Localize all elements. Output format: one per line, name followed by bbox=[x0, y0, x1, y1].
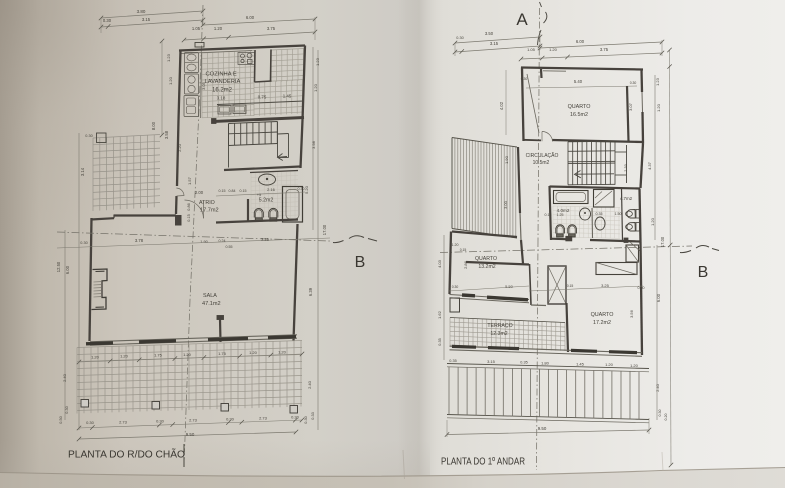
svg-text:PLANTA DO R/DO CHÃO: PLANTA DO R/DO CHÃO bbox=[68, 448, 185, 461]
svg-text:COZINHA E: COZINHA E bbox=[206, 72, 237, 78]
svg-text:3.07: 3.07 bbox=[628, 102, 633, 111]
svg-text:0.35: 0.35 bbox=[449, 359, 456, 363]
svg-text:6.00: 6.00 bbox=[246, 15, 255, 20]
svg-text:0.30: 0.30 bbox=[80, 241, 87, 245]
svg-text:0.50: 0.50 bbox=[59, 416, 63, 423]
svg-text:6.39: 6.39 bbox=[308, 287, 313, 296]
svg-text:9.50: 9.50 bbox=[538, 426, 547, 431]
svg-text:1.20: 1.20 bbox=[120, 354, 129, 359]
svg-text:3.75: 3.75 bbox=[267, 26, 276, 31]
svg-text:1.20: 1.20 bbox=[630, 363, 639, 368]
svg-text:LAVANDERIA: LAVANDERIA bbox=[205, 79, 241, 85]
svg-text:2.20: 2.20 bbox=[177, 143, 182, 152]
svg-text:0.30: 0.30 bbox=[65, 406, 69, 413]
svg-text:10.5m2: 10.5m2 bbox=[533, 160, 550, 166]
svg-text:0.30: 0.30 bbox=[638, 286, 645, 290]
svg-text:3.15: 3.15 bbox=[142, 17, 151, 22]
svg-text:1.90: 1.90 bbox=[504, 155, 509, 164]
svg-text:+9: +9 bbox=[257, 192, 262, 197]
svg-text:1.05: 1.05 bbox=[192, 26, 201, 31]
svg-text:2.73: 2.73 bbox=[119, 420, 128, 425]
svg-text:2.73: 2.73 bbox=[259, 416, 268, 421]
svg-text:0.30: 0.30 bbox=[156, 419, 165, 424]
svg-text:4.37: 4.37 bbox=[647, 161, 652, 170]
svg-text:3.25: 3.25 bbox=[261, 237, 270, 242]
svg-text:1.20: 1.20 bbox=[278, 350, 287, 355]
svg-text:1.20: 1.20 bbox=[605, 362, 614, 367]
svg-text:4.03: 4.03 bbox=[437, 259, 442, 268]
svg-text:1.62: 1.62 bbox=[437, 310, 442, 319]
svg-text:0.24: 0.24 bbox=[219, 239, 226, 243]
svg-text:0.30: 0.30 bbox=[658, 410, 662, 417]
svg-text:CIRCULAÇÃO: CIRCULAÇÃO bbox=[526, 152, 559, 159]
svg-text:A: A bbox=[516, 10, 528, 29]
svg-text:1.20: 1.20 bbox=[168, 76, 173, 85]
svg-text:2.33: 2.33 bbox=[624, 164, 628, 171]
svg-text:6.00: 6.00 bbox=[65, 265, 70, 274]
svg-text:3.56: 3.56 bbox=[629, 309, 634, 318]
svg-text:1.20: 1.20 bbox=[452, 243, 459, 247]
svg-text:1.80: 1.80 bbox=[541, 361, 550, 366]
svg-text:0.15: 0.15 bbox=[219, 189, 226, 193]
svg-text:QUARTO: QUARTO bbox=[568, 104, 591, 110]
svg-text:0.30: 0.30 bbox=[521, 77, 528, 81]
svg-text:0.30: 0.30 bbox=[456, 36, 463, 40]
svg-text:1.23: 1.23 bbox=[315, 57, 320, 66]
svg-text:0.84: 0.84 bbox=[229, 189, 236, 193]
svg-text:0.55: 0.55 bbox=[226, 245, 233, 249]
svg-text:47.1m2: 47.1m2 bbox=[202, 301, 221, 307]
svg-text:1.20: 1.20 bbox=[549, 47, 558, 52]
svg-text:3.00: 3.00 bbox=[503, 200, 508, 209]
svg-text:3.98: 3.98 bbox=[311, 140, 316, 149]
svg-text:0.30: 0.30 bbox=[103, 18, 112, 23]
svg-text:0.86: 0.86 bbox=[187, 203, 191, 210]
svg-text:5.40: 5.40 bbox=[574, 79, 583, 84]
svg-text:5.50: 5.50 bbox=[505, 284, 514, 289]
svg-text:2.40: 2.40 bbox=[62, 373, 67, 382]
svg-text:SALA: SALA bbox=[203, 293, 217, 299]
svg-text:1.90: 1.90 bbox=[200, 240, 207, 244]
svg-text:6.00: 6.00 bbox=[576, 39, 585, 44]
svg-text:1.23: 1.23 bbox=[655, 77, 660, 86]
svg-text:0.30: 0.30 bbox=[630, 81, 637, 85]
svg-text:3.25: 3.25 bbox=[601, 283, 610, 288]
svg-text:0.30: 0.30 bbox=[86, 420, 95, 425]
svg-text:2.73: 2.73 bbox=[189, 418, 198, 423]
svg-text:TERRAÇO: TERRAÇO bbox=[487, 323, 512, 329]
svg-text:0.35: 0.35 bbox=[438, 338, 442, 345]
svg-text:3.80: 3.80 bbox=[137, 9, 146, 14]
svg-text:17.00: 17.00 bbox=[322, 224, 327, 235]
svg-text:0.30: 0.30 bbox=[452, 285, 459, 289]
svg-text:1.75: 1.75 bbox=[154, 353, 163, 358]
svg-text:16.2m2: 16.2m2 bbox=[212, 88, 233, 94]
svg-text:1.23: 1.23 bbox=[166, 53, 171, 62]
svg-text:1.20: 1.20 bbox=[183, 352, 192, 357]
svg-text:3.78: 3.78 bbox=[135, 238, 144, 243]
svg-text:5.2m2: 5.2m2 bbox=[259, 198, 274, 204]
svg-text:2.40: 2.40 bbox=[307, 380, 312, 389]
svg-text:13.2m2: 13.2m2 bbox=[478, 264, 495, 270]
svg-text:0.15: 0.15 bbox=[187, 214, 191, 221]
svg-text:0.30: 0.30 bbox=[85, 134, 92, 138]
svg-text:0.35: 0.35 bbox=[520, 361, 527, 365]
svg-text:3.75: 3.75 bbox=[600, 47, 609, 52]
svg-text:0.15: 0.15 bbox=[460, 248, 467, 252]
svg-text:1.75: 1.75 bbox=[218, 351, 227, 356]
svg-text:B: B bbox=[355, 254, 366, 271]
svg-text:1.57: 1.57 bbox=[187, 176, 192, 185]
svg-text:QUARTO: QUARTO bbox=[475, 256, 497, 262]
svg-text:0.15: 0.15 bbox=[567, 284, 574, 288]
svg-text:PLANTA DO 1º ANDAR: PLANTA DO 1º ANDAR bbox=[441, 457, 525, 468]
svg-text:6.00: 6.00 bbox=[656, 293, 661, 302]
svg-text:1.45: 1.45 bbox=[576, 362, 585, 367]
svg-text:3.15: 3.15 bbox=[487, 359, 496, 364]
svg-text:0.33: 0.33 bbox=[311, 412, 315, 419]
svg-text:1.50: 1.50 bbox=[615, 212, 622, 216]
svg-text:1.20: 1.20 bbox=[249, 350, 258, 355]
svg-text:8.00: 8.00 bbox=[151, 121, 156, 130]
svg-text:2.16: 2.16 bbox=[267, 187, 276, 192]
svg-text:1.45: 1.45 bbox=[283, 94, 292, 99]
svg-text:0.30: 0.30 bbox=[291, 415, 300, 420]
svg-text:1.20: 1.20 bbox=[650, 217, 655, 226]
svg-text:ATRIO: ATRIO bbox=[199, 200, 215, 206]
svg-text:1.20: 1.20 bbox=[91, 355, 100, 360]
svg-text:4.02: 4.02 bbox=[499, 101, 504, 110]
svg-text:9.50: 9.50 bbox=[186, 432, 195, 437]
svg-text:0.15: 0.15 bbox=[240, 189, 247, 193]
svg-text:3.14: 3.14 bbox=[80, 167, 85, 176]
svg-text:16.5m2: 16.5m2 bbox=[570, 112, 588, 118]
svg-text:0.35: 0.35 bbox=[596, 212, 603, 216]
svg-text:1.25: 1.25 bbox=[557, 213, 564, 217]
svg-text:12.50: 12.50 bbox=[56, 261, 61, 272]
svg-text:3.50: 3.50 bbox=[485, 31, 494, 36]
svg-text:2.40: 2.40 bbox=[655, 383, 660, 392]
svg-text:1.20: 1.20 bbox=[313, 83, 318, 92]
svg-text:0.75: 0.75 bbox=[258, 95, 267, 100]
svg-text:1.20: 1.20 bbox=[214, 26, 223, 31]
svg-text:5.20: 5.20 bbox=[304, 185, 309, 194]
svg-text:3.15: 3.15 bbox=[490, 41, 499, 46]
svg-text:0.20: 0.20 bbox=[664, 414, 668, 421]
svg-text:QUARTO: QUARTO bbox=[591, 312, 614, 318]
svg-text:1.20: 1.20 bbox=[656, 103, 661, 112]
svg-text:12.3m2: 12.3m2 bbox=[490, 331, 507, 337]
svg-text:B: B bbox=[698, 264, 709, 281]
svg-text:2.00: 2.00 bbox=[195, 190, 204, 195]
svg-text:0.15: 0.15 bbox=[545, 213, 552, 217]
svg-text:17.00: 17.00 bbox=[660, 236, 665, 247]
svg-text:17.2m2: 17.2m2 bbox=[593, 320, 611, 326]
svg-text:1.05: 1.05 bbox=[527, 47, 536, 52]
svg-text:3.18: 3.18 bbox=[217, 96, 226, 101]
svg-text:3.05: 3.05 bbox=[201, 81, 206, 90]
svg-text:3.58: 3.58 bbox=[164, 130, 169, 139]
svg-text:0.30: 0.30 bbox=[304, 416, 308, 423]
